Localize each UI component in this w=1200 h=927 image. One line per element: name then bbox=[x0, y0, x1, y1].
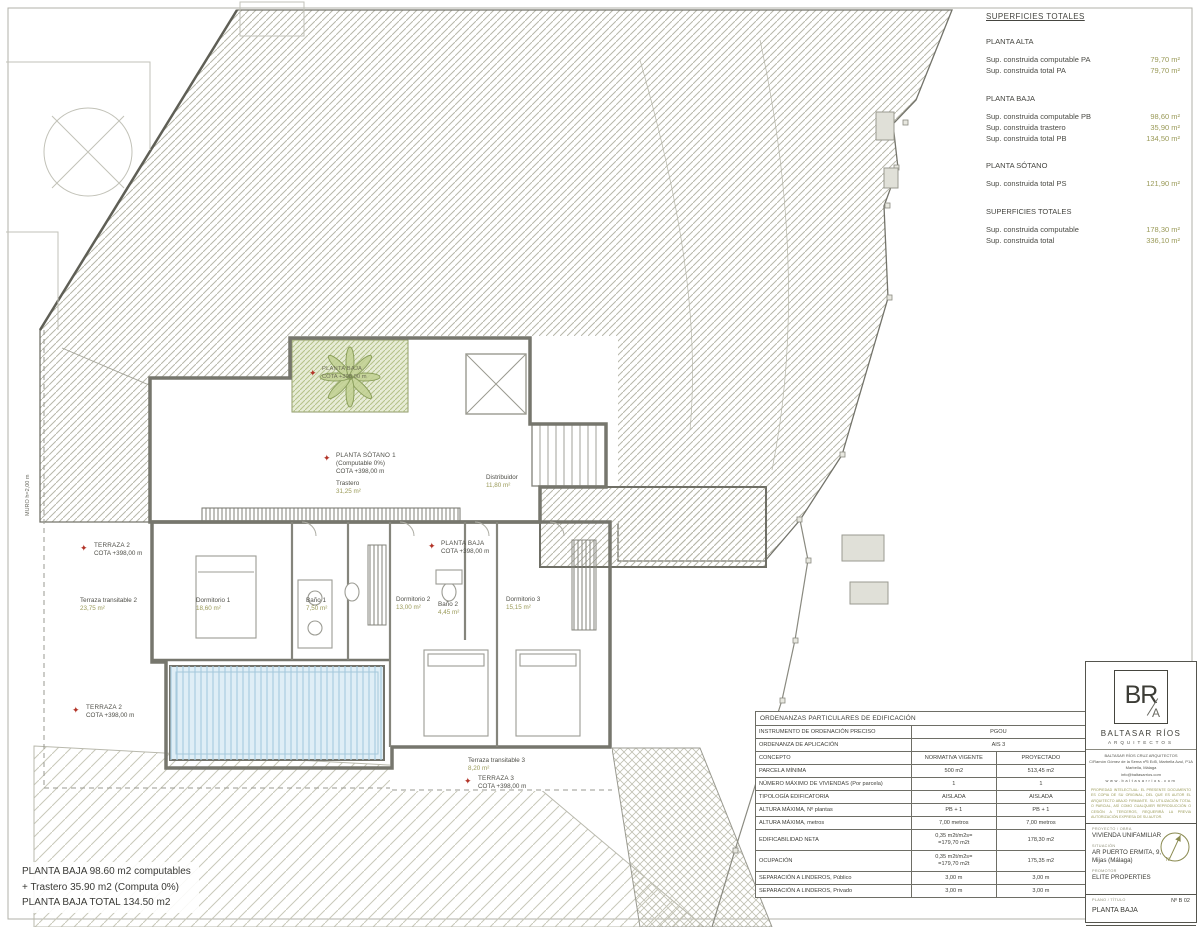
plano-title: PLANTA BAJA bbox=[1092, 907, 1190, 914]
plano-section: PLANO / TÍTULO Nº B 02 PLANTA BAJA bbox=[1086, 894, 1196, 925]
label-planta-sotano: PLANTA SÓTANO 1 (Computable 0%) COTA +39… bbox=[336, 452, 396, 496]
location-star-icon: ✦ bbox=[428, 542, 436, 551]
label-terraza-transitable3: Terraza transitable 3 8,20 m² bbox=[468, 757, 525, 773]
table-row: SEPARACIÓN A LINDEROS, Privado 3,00 m 3,… bbox=[756, 884, 1086, 897]
ordenanzas-grid: INSTRUMENTO DE ORDENACIÓN PRECISO PGOU O… bbox=[755, 725, 1086, 898]
door-swings bbox=[302, 522, 564, 536]
stairs-icon bbox=[532, 424, 606, 486]
label-terraza2-top: TERRAZA 2 COTA +398,00 m bbox=[94, 542, 142, 558]
firm-subtitle: ARQUITECTOS bbox=[1086, 740, 1196, 745]
label-terraza-transitable2: Terraza transitable 2 23,75 m² bbox=[80, 597, 137, 613]
superficies-row: Sup. construida total PB 134,50 m² bbox=[986, 134, 1180, 145]
window-band bbox=[202, 508, 460, 521]
location-star-icon: ✦ bbox=[464, 777, 472, 786]
plano-label: PLANO / TÍTULO bbox=[1092, 898, 1126, 902]
label-planta-baja: PLANTA BAJA COTA +398,00 m bbox=[441, 540, 489, 556]
table-row: PARCELA MÍNIMA 500 m2 513,45 m2 bbox=[756, 765, 1086, 778]
superficies-row: Sup. construida trastero 35,90 m² bbox=[986, 123, 1180, 134]
label-planta-baja-planter: PLANTA BAJA COTA +398,00 m bbox=[322, 366, 367, 381]
table-row: OCUPACIÓN 0,35 m2t/m2s= =179,70 m2t 175,… bbox=[756, 850, 1086, 871]
superficies-panel: SUPERFICIES TOTALES PLANTA ALTA Sup. con… bbox=[986, 12, 1180, 264]
location-star-icon: ✦ bbox=[72, 706, 80, 715]
table-header-row: CONCEPTO NORMATIVA VIGENTE PROYECTADO bbox=[756, 752, 1086, 765]
superficies-section-planta-baja: PLANTA BAJA Sup. construida computable P… bbox=[986, 94, 1180, 145]
summary-line3: PLANTA BAJA TOTAL 134.50 m2 bbox=[22, 895, 191, 911]
ordenanzas-table: ORDENANZAS PARTICULARES DE EDIFICACIÓN I… bbox=[755, 711, 1086, 898]
room-label-dormitorio3: Dormitorio 3 15,15 m² bbox=[506, 596, 540, 612]
svg-text:N: N bbox=[1166, 857, 1170, 863]
pool bbox=[170, 666, 384, 760]
firm-logo: BR A BALTASAR RÍOS ARQUITECTOS bbox=[1086, 662, 1196, 749]
table-row: ALTURA MÁXIMA, Nº plantas PB + 1 PB + 1 bbox=[756, 804, 1086, 817]
superficies-section-totales: SUPERFICIES TOTALES Sup. construida comp… bbox=[986, 207, 1180, 247]
superficies-title: SUPERFICIES TOTALES bbox=[986, 12, 1180, 21]
label-terraza2-bottom: TERRAZA 2 COTA +398,00 m bbox=[86, 704, 134, 720]
location-star-icon: ✦ bbox=[309, 369, 317, 378]
firm-name: BALTASAR RÍOS bbox=[1086, 729, 1196, 738]
room-label-bano2: Baño 2 4,45 m² bbox=[438, 601, 459, 617]
copyright-disclaimer: PROPIEDAD INTELECTUAL: EL PRESENTE DOCUM… bbox=[1086, 786, 1196, 823]
superficies-row: Sup. construida total PS 121,90 m² bbox=[986, 179, 1180, 190]
firm-contact-info: BALTASAR RÍOS CRUZ ARQUITECTOS C/Ramón G… bbox=[1086, 749, 1196, 786]
table-row: ALTURA MÁXIMA, metros 7,00 metros 7,00 m… bbox=[756, 817, 1086, 830]
location-star-icon: ✦ bbox=[323, 454, 331, 463]
project-fields: N PROYECTO / OBRA VIVIENDA UNIFAMILIAR S… bbox=[1086, 823, 1196, 894]
summary-line2: + Trastero 35.90 m2 (Computa 0%) bbox=[22, 880, 191, 896]
superficies-section-planta-alta: PLANTA ALTA Sup. construida computable P… bbox=[986, 37, 1180, 77]
summary-line1: PLANTA BAJA 98.60 m2 computables bbox=[22, 864, 191, 880]
label-distribuidor: Distribuidor 11,80 m² bbox=[486, 474, 518, 490]
table-row: SEPARACIÓN A LINDEROS, Público 3,00 m 3,… bbox=[756, 871, 1086, 884]
superficies-row: Sup. construida total PA 79,70 m² bbox=[986, 66, 1180, 77]
location-star-icon: ✦ bbox=[80, 544, 88, 553]
drawing-sheet: ✦ PLANTA SÓTANO 1 (Computable 0%) COTA +… bbox=[0, 0, 1200, 927]
superficies-row: Sup. construida computable PB 98,60 m² bbox=[986, 112, 1180, 123]
table-row: NÚMERO MÁXIMO DE VIVIENDAS (Por parcela)… bbox=[756, 778, 1086, 791]
north-arrow-icon: N bbox=[1158, 830, 1192, 864]
table-row: EDIFICABILIDAD NETA 0,35 m2t/m2s= =179,7… bbox=[756, 830, 1086, 851]
title-block: BR A BALTASAR RÍOS ARQUITECTOS BALTASAR … bbox=[1085, 661, 1197, 923]
plano-number: Nº B 02 bbox=[1171, 898, 1190, 904]
planta-baja-summary: PLANTA BAJA 98.60 m2 computables + Trast… bbox=[20, 862, 199, 913]
slope-hatch bbox=[612, 748, 772, 927]
skylight bbox=[466, 354, 526, 414]
superficies-row: Sup. construida computable PA 79,70 m² bbox=[986, 55, 1180, 66]
room-label-bano1: Baño 1 7,50 m² bbox=[306, 597, 327, 613]
table-row: INSTRUMENTO DE ORDENACIÓN PRECISO PGOU bbox=[756, 726, 1086, 739]
room-label-dormitorio1: Dormitorio 1 18,60 m² bbox=[196, 597, 230, 613]
ordenanzas-title: ORDENANZAS PARTICULARES DE EDIFICACIÓN bbox=[755, 711, 1086, 726]
superficies-section-planta-sotano: PLANTA SÓTANO Sup. construida total PS 1… bbox=[986, 161, 1180, 190]
superficies-row: Sup. construida computable 178,30 m² bbox=[986, 225, 1180, 236]
label-terraza3: TERRAZA 3 COTA +398,00 m bbox=[478, 775, 526, 791]
promotor-value: ELITE PROPERTIES bbox=[1092, 874, 1190, 882]
table-row: ORDENANZA DE APLICACIÓN AIS 3 bbox=[756, 739, 1086, 752]
promotor-label: PROMOTOR bbox=[1092, 869, 1190, 873]
superficies-row: Sup. construida total 336,10 m² bbox=[986, 236, 1180, 247]
label-muro: MURO h=2,00 m bbox=[25, 475, 31, 516]
table-row: TIPOLOGÍA EDIFICATORIA AISLADA AISLADA bbox=[756, 791, 1086, 804]
logo-a: A bbox=[1152, 706, 1160, 720]
logo-box: BR A bbox=[1114, 670, 1168, 724]
room-label-dormitorio2: Dormitorio 2 13,00 m² bbox=[396, 596, 430, 612]
